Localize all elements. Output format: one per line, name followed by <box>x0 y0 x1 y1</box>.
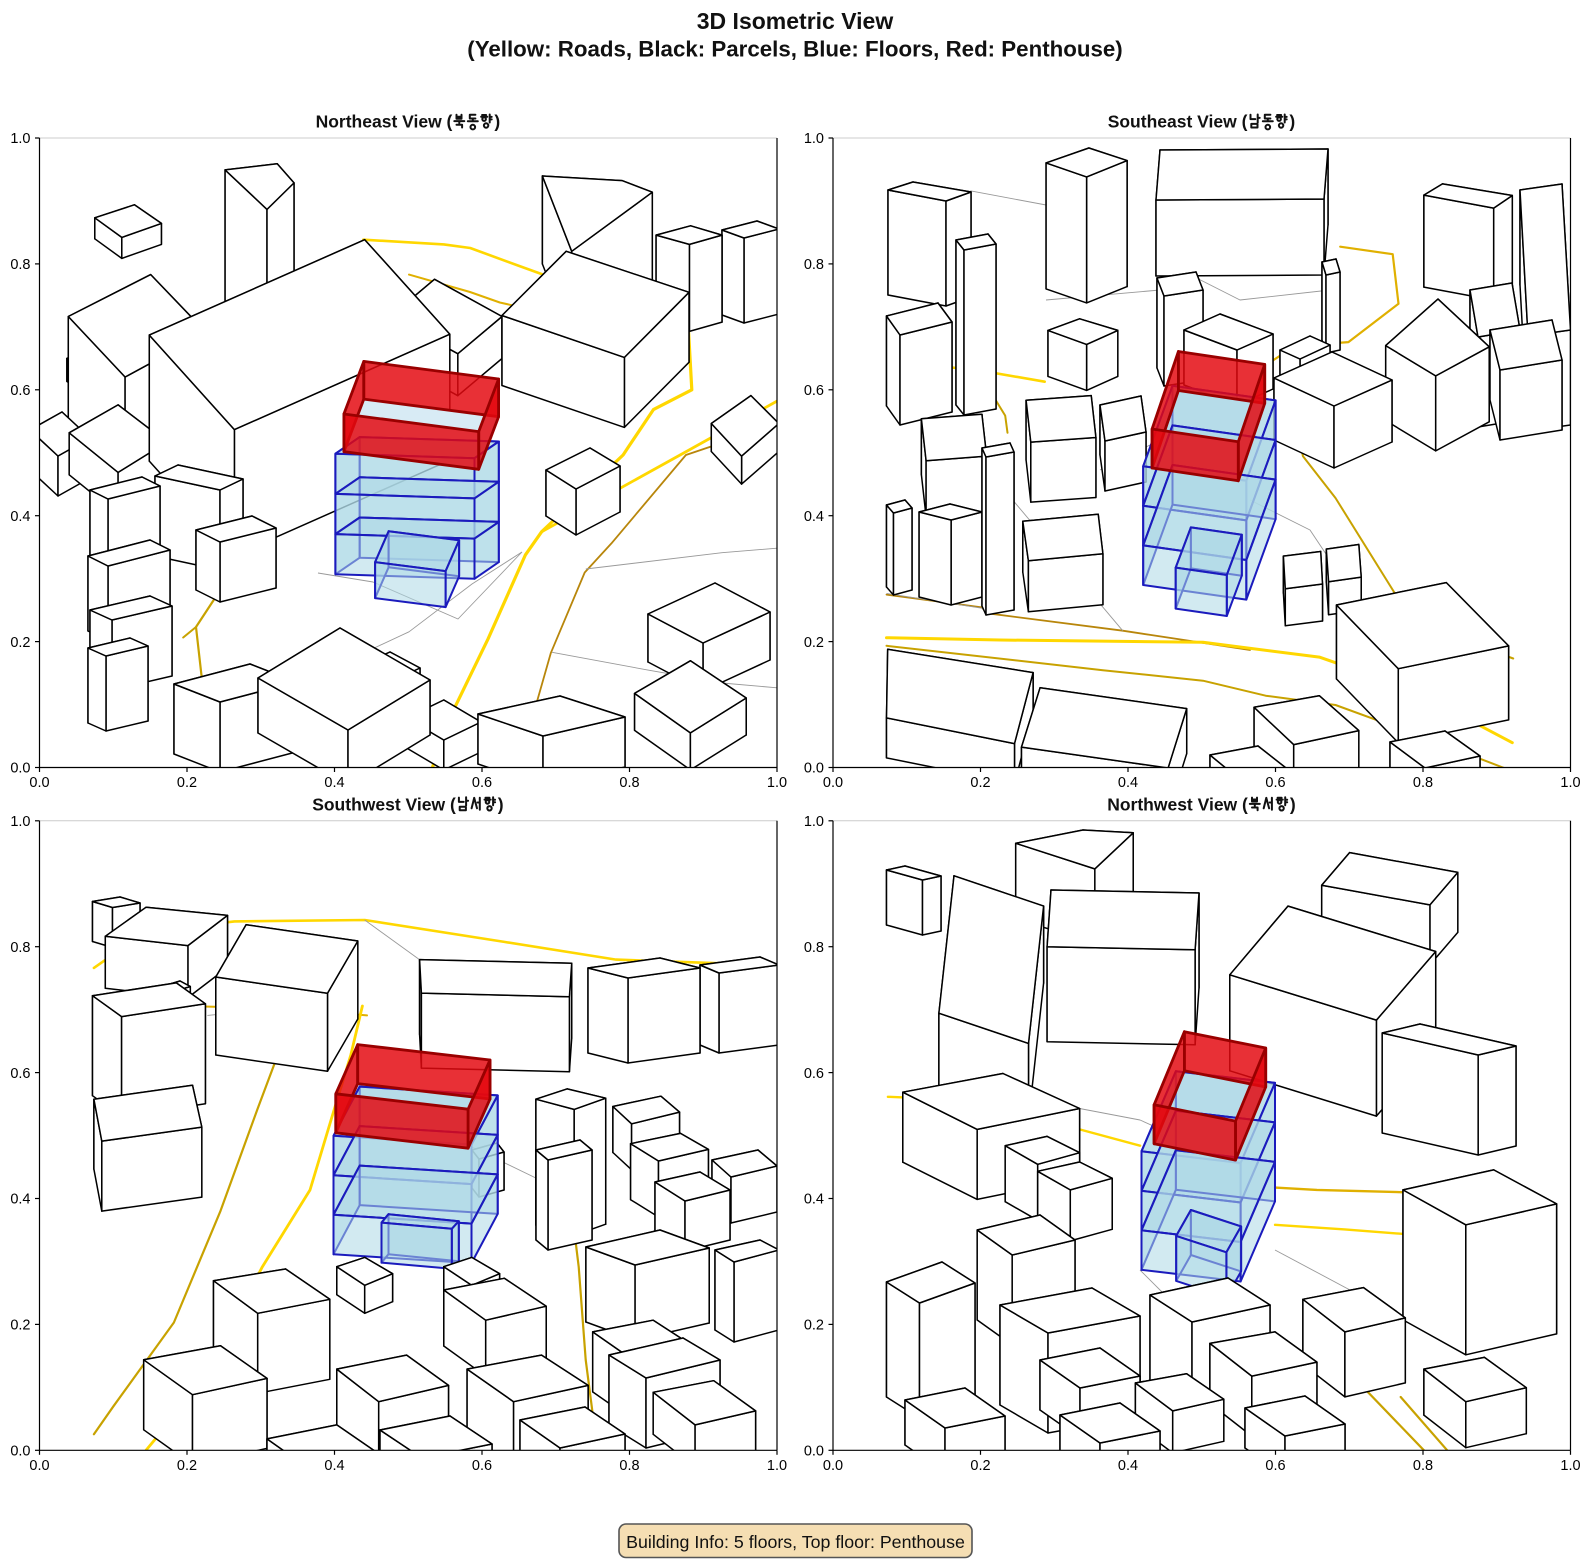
svg-text:0.8: 0.8 <box>619 1458 639 1474</box>
svg-text:0.8: 0.8 <box>1413 1458 1433 1474</box>
svg-text:0.0: 0.0 <box>823 1458 843 1474</box>
svg-text:0.4: 0.4 <box>1118 1458 1138 1474</box>
svg-text:0.8: 0.8 <box>619 775 639 791</box>
svg-text:1.0: 1.0 <box>804 814 824 830</box>
svg-text:0.6: 0.6 <box>1265 1458 1285 1474</box>
svg-text:0.4: 0.4 <box>10 509 30 525</box>
svg-text:0.8: 0.8 <box>1413 775 1433 791</box>
svg-text:1.0: 1.0 <box>1560 775 1580 791</box>
svg-text:0.8: 0.8 <box>804 257 824 273</box>
svg-text:0.2: 0.2 <box>804 1318 824 1334</box>
svg-text:(Yellow: Roads, Black: Parcels: (Yellow: Roads, Black: Parcels, Blue: Fl… <box>467 37 1122 62</box>
svg-text:): ) <box>1290 794 1296 814</box>
svg-text:0.2: 0.2 <box>10 1318 30 1334</box>
svg-text:0.4: 0.4 <box>324 1458 344 1474</box>
svg-text:0.0: 0.0 <box>804 1444 824 1460</box>
svg-text:Northwest View (: Northwest View ( <box>1107 794 1248 814</box>
svg-text:0.8: 0.8 <box>10 257 30 273</box>
svg-text:3D Isometric View: 3D Isometric View <box>697 8 894 34</box>
svg-text:0.6: 0.6 <box>1265 775 1285 791</box>
svg-text:0.2: 0.2 <box>804 635 824 651</box>
svg-text:0.6: 0.6 <box>472 775 492 791</box>
svg-text:0.2: 0.2 <box>177 775 197 791</box>
svg-text:0.4: 0.4 <box>324 775 344 791</box>
svg-text:0.4: 0.4 <box>804 1192 824 1208</box>
svg-text:0.8: 0.8 <box>10 940 30 956</box>
svg-text:0.0: 0.0 <box>29 1458 49 1474</box>
svg-text:0.6: 0.6 <box>804 1066 824 1082</box>
svg-text:1.0: 1.0 <box>767 775 787 791</box>
svg-text:0.2: 0.2 <box>970 1458 990 1474</box>
svg-text:0.0: 0.0 <box>10 1444 30 1460</box>
svg-text:0.0: 0.0 <box>804 761 824 777</box>
svg-text:): ) <box>498 794 504 814</box>
svg-text:Southeast View (: Southeast View ( <box>1108 112 1248 132</box>
svg-text:0.4: 0.4 <box>10 1192 30 1208</box>
svg-text:): ) <box>1289 112 1295 132</box>
svg-text:Southwest View (: Southwest View ( <box>312 794 456 814</box>
svg-text:0.6: 0.6 <box>804 383 824 399</box>
svg-text:0.8: 0.8 <box>804 940 824 956</box>
svg-text:0.0: 0.0 <box>10 761 30 777</box>
svg-text:0.6: 0.6 <box>472 1458 492 1474</box>
svg-text:0.2: 0.2 <box>970 775 990 791</box>
svg-text:): ) <box>494 112 500 132</box>
svg-text:Building Info: 5 floors, Top f: Building Info: 5 floors, Top floor: Pent… <box>626 1532 965 1552</box>
svg-text:1.0: 1.0 <box>1560 1458 1580 1474</box>
svg-text:1.0: 1.0 <box>767 1458 787 1474</box>
svg-text:0.2: 0.2 <box>10 635 30 651</box>
svg-text:0.6: 0.6 <box>10 383 30 399</box>
svg-text:0.0: 0.0 <box>29 775 49 791</box>
svg-text:0.4: 0.4 <box>804 509 824 525</box>
svg-text:Northeast View (: Northeast View ( <box>316 112 453 132</box>
svg-text:0.6: 0.6 <box>10 1066 30 1082</box>
svg-text:1.0: 1.0 <box>804 131 824 147</box>
svg-text:0.0: 0.0 <box>823 775 843 791</box>
svg-text:1.0: 1.0 <box>10 131 30 147</box>
svg-text:1.0: 1.0 <box>10 814 30 830</box>
svg-text:0.2: 0.2 <box>177 1458 197 1474</box>
svg-text:0.4: 0.4 <box>1118 775 1138 791</box>
